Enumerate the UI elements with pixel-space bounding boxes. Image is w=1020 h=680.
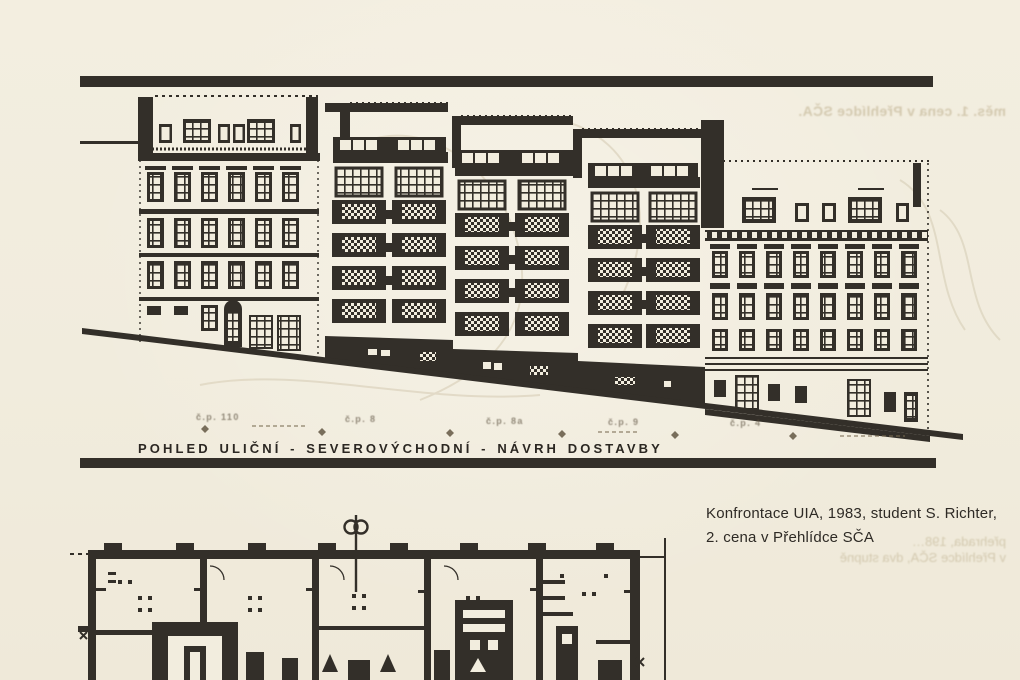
buildings-middle-modern <box>325 103 724 407</box>
building-left-classical <box>138 96 320 358</box>
house-label: č.p. 4 <box>730 418 761 428</box>
building-right-classical <box>705 161 930 442</box>
house-label: č.p. 8a <box>486 416 524 426</box>
parcel-markers <box>201 425 905 440</box>
elevation-caption: POHLED ULIČNÍ - SEVEROVÝCHODNÍ - NÁVRH D… <box>138 441 663 456</box>
floor-plan-drawing <box>0 500 1020 680</box>
top-rule <box>80 76 933 87</box>
bottom-rule <box>80 458 936 468</box>
house-label: č.p. 9 <box>608 417 639 427</box>
house-label: č.p. 110 <box>196 412 240 422</box>
house-label: č.p. 8 <box>345 414 376 424</box>
